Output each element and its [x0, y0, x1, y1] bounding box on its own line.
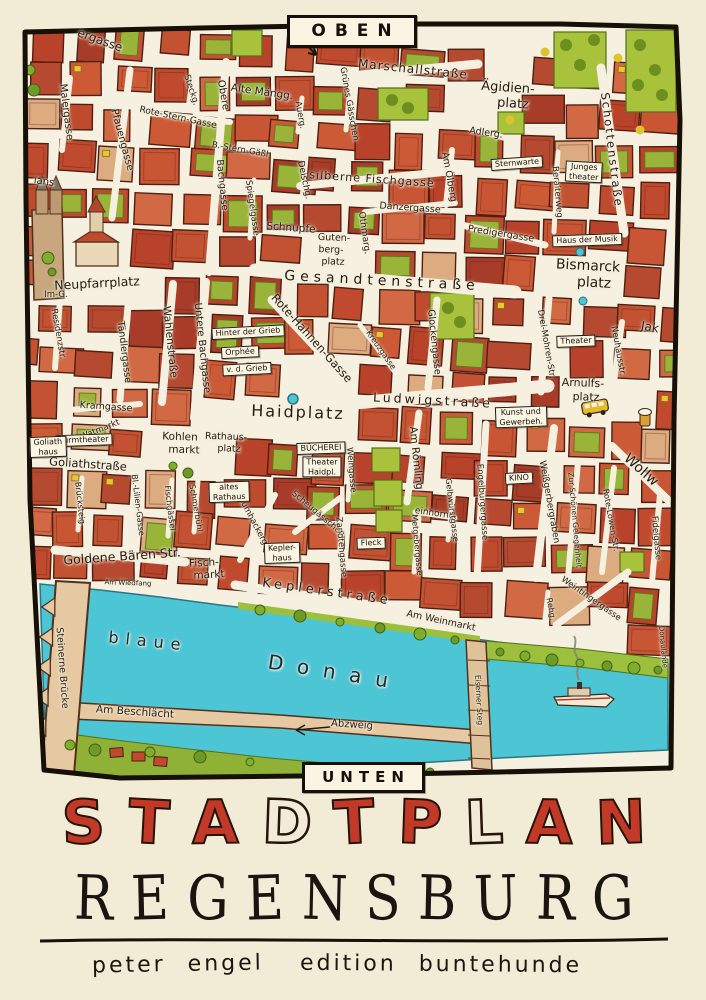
title-letter: T — [332, 789, 377, 871]
title-letter: T — [126, 789, 171, 871]
title-letter: N — [594, 789, 647, 871]
title-letter: S — [61, 789, 107, 870]
stadtplan-poster: ergasseMalergassePfauengasseiansRote-Ste… — [0, 0, 706, 1000]
poster-title: STADTPLAN — [62, 790, 646, 870]
title-letter: D — [260, 789, 313, 871]
publisher-credit: edition buntehunde — [300, 951, 582, 978]
divider-line — [0, 932, 706, 948]
title-letter: L — [464, 789, 505, 870]
title-letter: A — [191, 790, 239, 871]
title-letter: A — [526, 790, 574, 871]
title-letter: P — [397, 789, 444, 870]
author-credit: peter engel — [92, 951, 264, 979]
orientation-marker-bottom: UNTEN — [302, 762, 425, 793]
orientation-marker-top: OBEN — [287, 15, 417, 48]
poster-subtitle: REGENSBURG — [74, 872, 634, 938]
